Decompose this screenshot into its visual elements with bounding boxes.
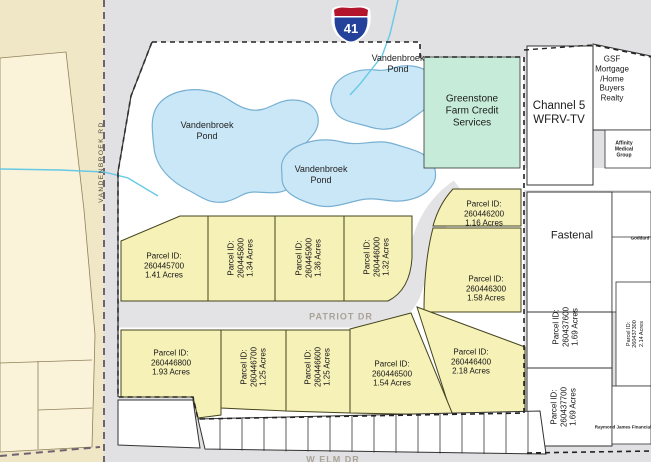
lot-fastenal[interactable] (527, 192, 612, 312)
lot-affinity[interactable] (605, 130, 651, 168)
lot-southwest[interactable] (118, 400, 200, 448)
parcel-260445900[interactable] (275, 216, 344, 301)
lot-greenstone[interactable] (424, 57, 520, 168)
parcel-260445800[interactable] (208, 216, 275, 301)
parcel-260446600[interactable] (286, 330, 350, 413)
interstate-41-shield (331, 6, 370, 43)
pond-south (282, 140, 436, 207)
parcel-map-viewport[interactable]: 41 Vandenbroek Pond Vandenbroek Pond Van… (0, 0, 651, 462)
parcel-260446000[interactable] (344, 216, 412, 301)
parcel-260446300[interactable] (424, 228, 521, 312)
lot-gsf-mortgage[interactable] (593, 44, 651, 130)
lot-260437300[interactable] (616, 282, 651, 386)
lot-260437600[interactable] (527, 312, 612, 368)
small-lots-strip[interactable] (198, 411, 546, 454)
lot-channel5[interactable] (527, 46, 593, 185)
lot-raymond-james[interactable] (612, 386, 651, 444)
parcel-260446700[interactable] (221, 330, 286, 411)
